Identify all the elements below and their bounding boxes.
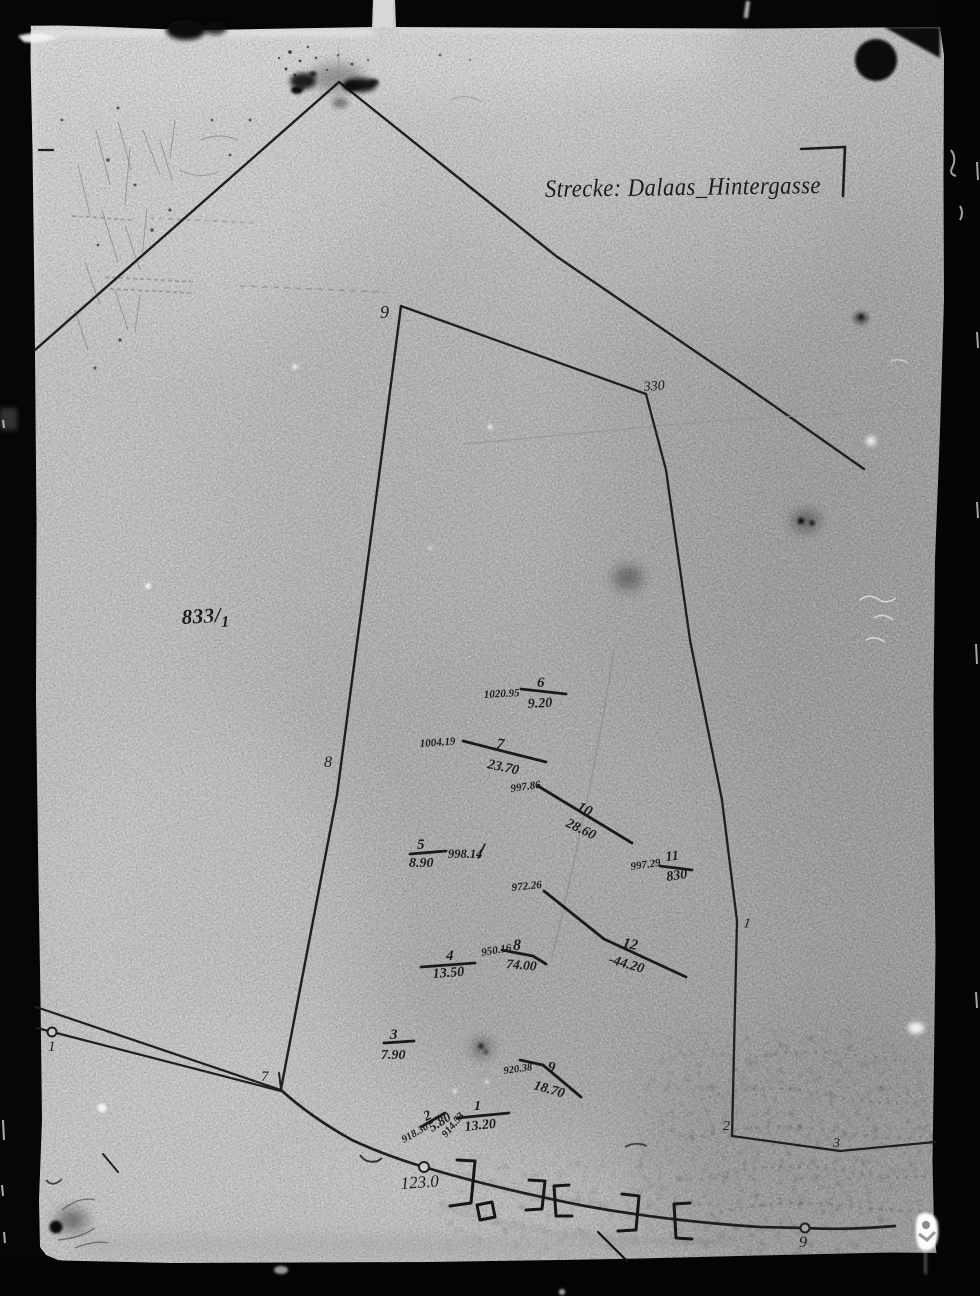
- svg-text:1: 1: [474, 1099, 481, 1114]
- svg-text:11: 11: [665, 849, 680, 865]
- svg-text:9: 9: [380, 302, 389, 322]
- svg-text:8: 8: [324, 754, 332, 771]
- svg-text:8.90: 8.90: [409, 856, 434, 871]
- svg-text:1004.19: 1004.19: [419, 735, 456, 749]
- svg-text:2: 2: [723, 1119, 730, 1134]
- svg-text:998.14: 998.14: [448, 847, 482, 861]
- svg-text:9.20: 9.20: [527, 696, 552, 712]
- svg-text:Strecke: Dalaas_Hintergasse: Strecke: Dalaas_Hintergasse: [545, 172, 821, 203]
- svg-text:13.50: 13.50: [432, 965, 464, 982]
- svg-text:7.90: 7.90: [381, 1048, 406, 1063]
- svg-text:8: 8: [513, 937, 521, 954]
- svg-text:3: 3: [832, 1136, 840, 1151]
- svg-text:3: 3: [389, 1027, 398, 1043]
- svg-text:4: 4: [445, 948, 454, 964]
- svg-text:1020.95: 1020.95: [484, 687, 521, 701]
- svg-text:330: 330: [642, 379, 665, 395]
- svg-text:6: 6: [537, 675, 545, 691]
- svg-text:74.00: 74.00: [506, 956, 538, 974]
- svg-text:830: 830: [665, 867, 688, 885]
- svg-text:123.0: 123.0: [400, 1171, 440, 1193]
- svg-text:9: 9: [799, 1234, 807, 1251]
- svg-text:1: 1: [48, 1039, 56, 1055]
- svg-text:5: 5: [417, 837, 425, 853]
